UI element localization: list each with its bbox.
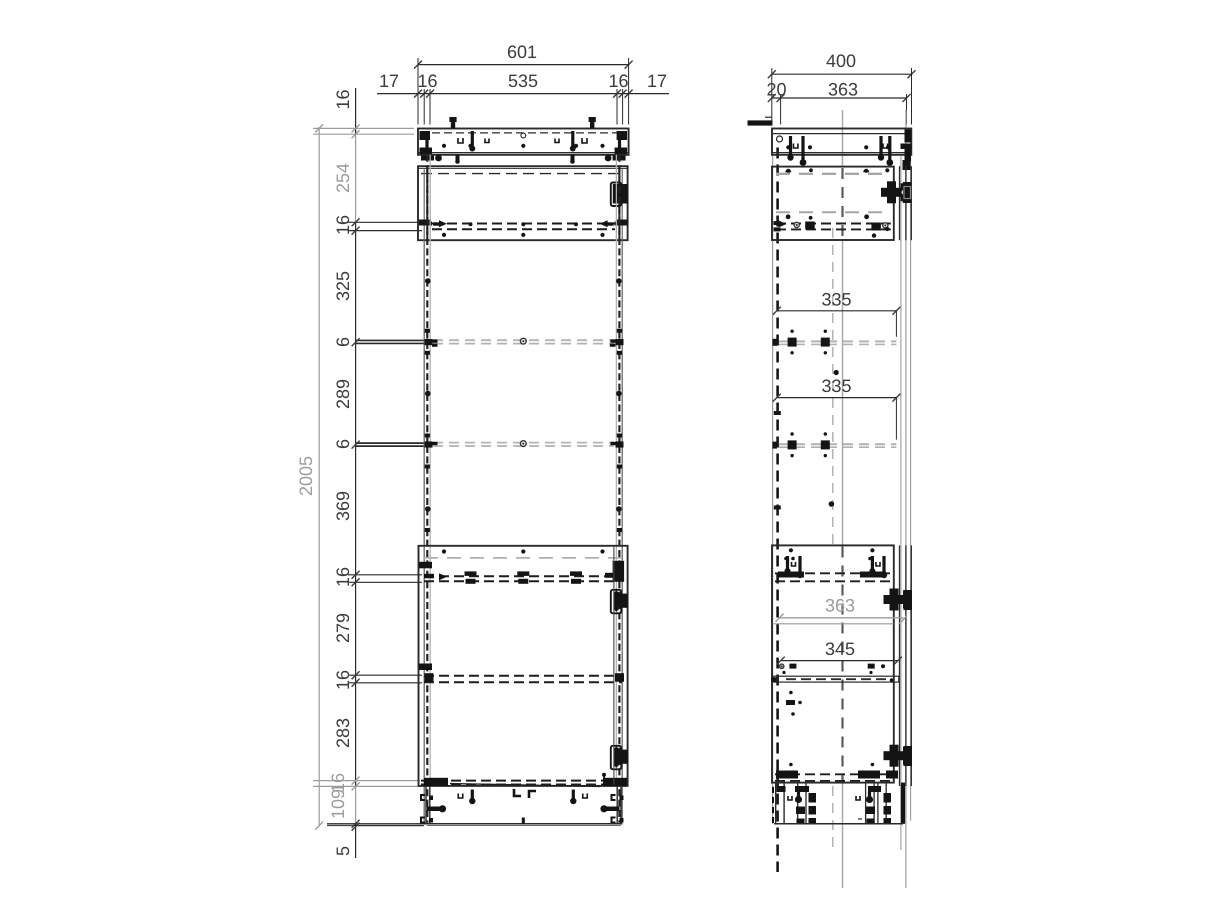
svg-text:17: 17 [647, 71, 667, 91]
svg-text:369: 369 [333, 491, 353, 521]
svg-text:2005: 2005 [296, 456, 316, 496]
svg-text:363: 363 [825, 596, 855, 616]
svg-text:535: 535 [508, 71, 538, 91]
svg-text:283: 283 [333, 718, 353, 748]
svg-text:325: 325 [333, 271, 353, 301]
svg-text:345: 345 [825, 639, 855, 659]
svg-text:16: 16 [417, 71, 437, 91]
svg-text:16: 16 [333, 215, 353, 235]
svg-text:16: 16 [608, 71, 628, 91]
svg-text:16: 16 [333, 670, 353, 690]
svg-text:6: 6 [333, 337, 353, 347]
svg-text:6: 6 [333, 439, 353, 449]
svg-text:20: 20 [766, 80, 786, 100]
svg-text:400: 400 [826, 51, 856, 71]
svg-text:279: 279 [333, 613, 353, 643]
svg-text:254: 254 [333, 163, 353, 193]
svg-text:5: 5 [333, 846, 353, 856]
svg-text:335: 335 [821, 376, 851, 396]
svg-text:335: 335 [821, 290, 851, 310]
svg-text:17: 17 [379, 71, 399, 91]
svg-text:363: 363 [828, 80, 858, 100]
svg-text:16: 16 [333, 89, 353, 109]
svg-text:601: 601 [507, 42, 537, 62]
svg-text:16: 16 [333, 567, 353, 587]
svg-text:289: 289 [333, 379, 353, 409]
svg-text:109: 109 [328, 789, 348, 819]
